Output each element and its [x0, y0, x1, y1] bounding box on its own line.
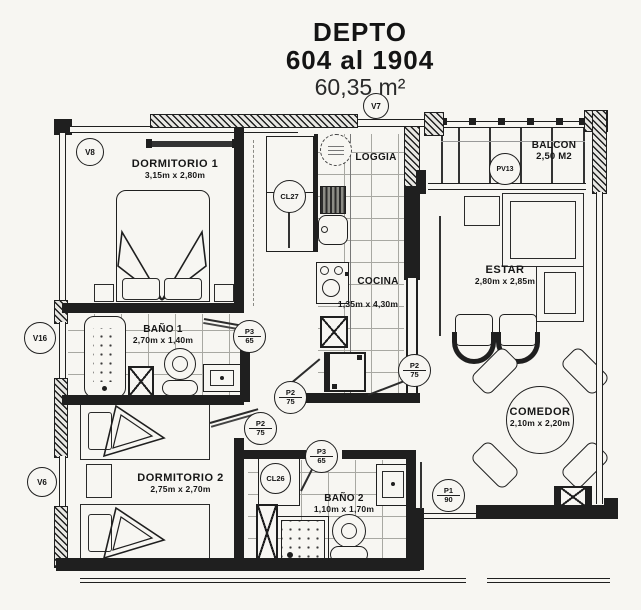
entry-threshold: [424, 513, 476, 519]
marker-label: CL27: [280, 192, 298, 201]
marker-door-p3-bano1: P3 65: [233, 320, 266, 353]
label-cocina: COCINA: [348, 276, 408, 287]
label-cocina-dims: 1,35m x 4,30m: [324, 299, 412, 309]
marker-closet-cl27: CL27: [273, 180, 306, 213]
toilet-bowl: [341, 523, 357, 539]
curtain-rod: [150, 141, 234, 147]
door-width: 65: [310, 457, 332, 466]
wall-dorm2-right: [234, 438, 244, 566]
wall-bano2-top-right: [342, 450, 416, 459]
marker-label: CL26: [266, 474, 284, 483]
marker-door-p3-bano2: P3 65: [305, 440, 338, 473]
marker-window-pv13: PV13: [489, 153, 521, 185]
washing-machine: [320, 186, 346, 214]
room-dims: 2,10m x 2,20m: [495, 418, 585, 428]
pillow: [164, 278, 202, 300]
door-width: 90: [437, 496, 459, 505]
label-comedor: COMEDOR 2,10m x 2,20m: [495, 406, 585, 428]
fridge-hinge: [357, 355, 362, 360]
wall-dorm1-right: [234, 128, 244, 310]
bathtub-drain: [102, 386, 107, 391]
wall-dorm1-bano1: [62, 303, 244, 313]
nightstand: [94, 284, 114, 302]
balcony-mullion: [441, 128, 443, 184]
sink-drain: [391, 482, 395, 486]
duct-shaft: [320, 316, 348, 348]
marker-closet-cl26: CL26: [260, 463, 291, 494]
room-name: LOGGIA: [355, 152, 396, 163]
railing-post: [469, 118, 476, 125]
door-width: 75: [279, 398, 301, 407]
marker-label: V8: [85, 148, 95, 157]
room-dims: 2,75m x 2,70m: [108, 484, 253, 494]
room-name: DORMITORIO 2: [108, 472, 253, 484]
toilet-base: [162, 380, 198, 396]
dining-chair: [470, 440, 521, 491]
room-dims: 1,35m x 4,30m: [338, 299, 398, 309]
bed-blanket-folds: [100, 404, 170, 460]
stove-burner: [334, 266, 343, 275]
marker-label: PV13: [496, 166, 513, 173]
bath-cabinet: [128, 366, 154, 397]
corridor-line: [487, 578, 610, 583]
bed-blanket-folds: [100, 506, 170, 562]
marker-door-p2-estar: P2 75: [398, 354, 431, 387]
room-name: COMEDOR: [495, 406, 585, 418]
stove-burner: [320, 266, 329, 275]
door-width: 65: [238, 337, 260, 346]
floorplan-canvas: DEPTO 604 al 1904 60,35 m²: [0, 0, 641, 610]
toilet-bowl: [172, 356, 188, 372]
corridor-line: [80, 578, 466, 583]
room-dims: 2,50 M2: [518, 151, 590, 162]
title-depto: DEPTO: [220, 18, 500, 46]
room-name: BALCON: [518, 140, 590, 151]
estar-floor-line: [439, 216, 441, 336]
marker-label: V7: [371, 102, 381, 111]
railing-post: [527, 118, 534, 125]
room-name: COCINA: [357, 276, 398, 287]
door-width: 75: [249, 429, 271, 438]
laundry-faucet: [321, 226, 328, 233]
window-band-right: [596, 192, 603, 504]
title-units: 604 al 1904: [220, 46, 500, 74]
wall-bano1-dorm2: [62, 395, 244, 405]
label-bano1: BAÑO 1 2,70m x 1,40m: [118, 324, 208, 345]
wall-cocina-bottom: [298, 393, 420, 403]
wall-bano2-top-left: [244, 450, 306, 459]
pillow: [122, 278, 160, 300]
wall-cocina-estar: [404, 186, 420, 280]
label-loggia: LOGGIA: [346, 152, 406, 163]
window-v8-band: [59, 133, 66, 303]
sink-drain: [220, 376, 224, 380]
curtain-rod-end: [146, 139, 152, 148]
nightstand: [214, 284, 234, 302]
balcony-railing: [440, 121, 586, 128]
marker-door-p2-cocina: P2 75: [274, 381, 307, 414]
wall-bano2-right: [406, 452, 416, 566]
dashed-projection-line: [253, 140, 255, 306]
label-dormitorio2: DORMITORIO 2 2,75m x 2,70m: [108, 472, 253, 494]
vertical-shaft: [256, 504, 278, 562]
side-table: [464, 196, 500, 226]
label-balcon: BALCON 2,50 M2: [518, 140, 590, 162]
door-leaf-entrance: [420, 462, 422, 509]
marker-label: V6: [37, 478, 47, 487]
sofa-cushion: [510, 201, 576, 259]
balcony-mullion: [458, 128, 460, 184]
title-area: 60,35 m²: [220, 74, 500, 100]
room-name: BAÑO 2: [300, 493, 388, 504]
marker-window-v8: V8: [76, 138, 104, 166]
bathtub-texture: [93, 328, 118, 382]
label-dormitorio1: DORMITORIO 1 3,15m x 2,80m: [100, 158, 250, 180]
window-v6-band: [59, 456, 66, 508]
railing-post: [556, 118, 563, 125]
hatched-pillar: [424, 112, 444, 136]
wall-loggia-left: [314, 134, 318, 252]
wall-corner: [604, 498, 618, 519]
marker-window-v7: V7: [363, 93, 389, 119]
label-estar: ESTAR 2,80m x 2,85m: [455, 264, 555, 286]
room-dims: 2,80m x 2,85m: [455, 276, 555, 286]
wall-comedor-bottom: [476, 505, 616, 519]
room-dims: 3,15m x 2,80m: [100, 170, 250, 180]
room-dims: 1,10m x 1,70m: [300, 504, 388, 514]
marker-window-v6: V6: [27, 467, 57, 497]
door-width: 75: [403, 371, 425, 380]
marker-window-v16: V16: [24, 322, 56, 354]
room-name: ESTAR: [455, 264, 555, 276]
stove-burner-large: [322, 279, 340, 297]
room-name: DORMITORIO 1: [100, 158, 250, 170]
label-bano2: BAÑO 2 1,10m x 1,70m: [300, 493, 388, 514]
hatched-wall-top: [150, 114, 358, 128]
title-block: DEPTO 604 al 1904 60,35 m²: [220, 18, 500, 100]
window-v16-band: [59, 322, 66, 380]
fridge-hinge: [332, 384, 337, 389]
hatched-wall-left: [54, 378, 68, 458]
marker-label: V16: [33, 334, 47, 343]
room-dims: 2,70m x 1,40m: [118, 335, 208, 345]
room-name: BAÑO 1: [118, 324, 208, 335]
hatched-wall-right: [592, 110, 607, 194]
marker-door-p1-acceso: P1 90: [432, 479, 465, 512]
marker-door-p2-dorm2: P2 75: [244, 412, 277, 445]
railing-post: [498, 118, 505, 125]
